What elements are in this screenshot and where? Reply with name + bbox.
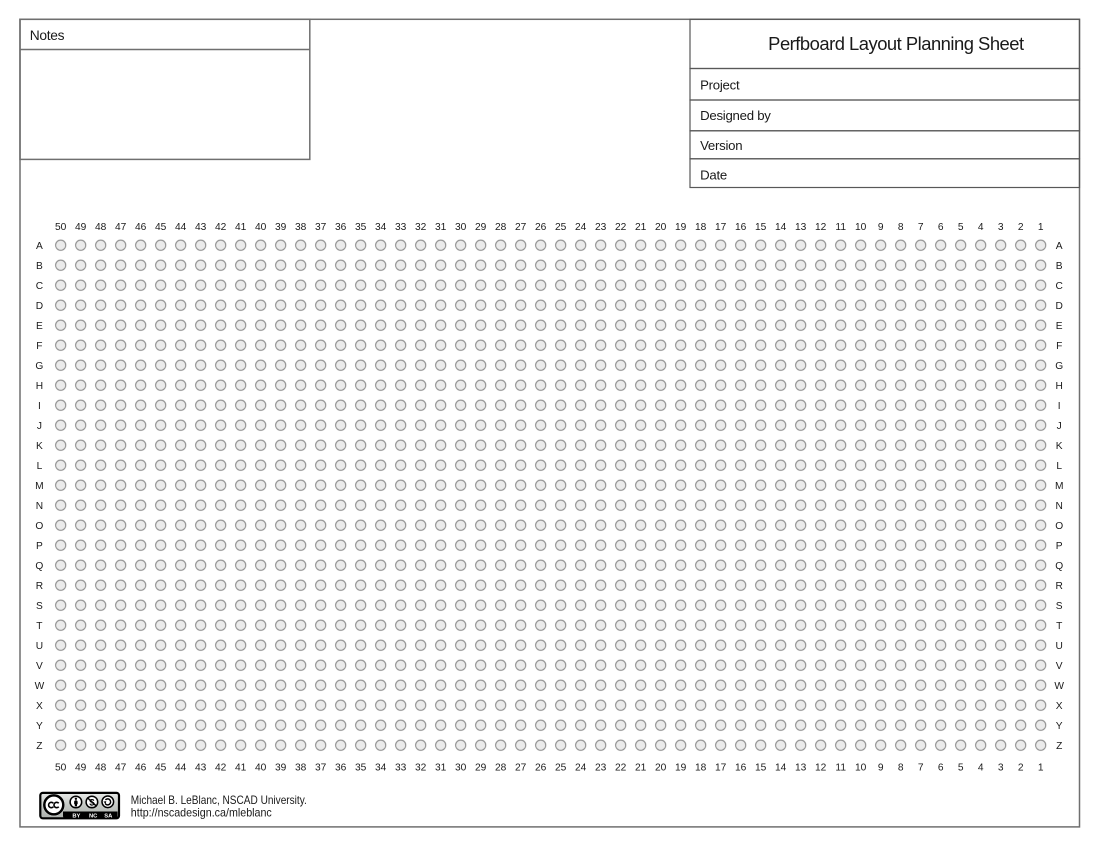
svg-text:33: 33 bbox=[395, 222, 407, 233]
svg-text:38: 38 bbox=[295, 222, 307, 233]
svg-text:35: 35 bbox=[355, 222, 367, 233]
svg-text:38: 38 bbox=[295, 763, 307, 774]
svg-text:12: 12 bbox=[815, 222, 827, 233]
svg-text:37: 37 bbox=[315, 222, 327, 233]
svg-text:R: R bbox=[36, 581, 43, 592]
svg-text:19: 19 bbox=[675, 763, 687, 774]
svg-text:18: 18 bbox=[695, 222, 707, 233]
svg-text:4: 4 bbox=[978, 763, 984, 774]
svg-text:15: 15 bbox=[755, 222, 767, 233]
svg-text:D: D bbox=[36, 301, 43, 312]
svg-text:15: 15 bbox=[755, 763, 767, 774]
svg-text:29: 29 bbox=[475, 763, 487, 774]
svg-text:K: K bbox=[36, 441, 43, 452]
svg-text:46: 46 bbox=[135, 222, 147, 233]
svg-text:45: 45 bbox=[155, 222, 167, 233]
svg-text:49: 49 bbox=[75, 763, 87, 774]
svg-text:48: 48 bbox=[95, 763, 107, 774]
svg-text:14: 14 bbox=[775, 222, 787, 233]
svg-text:Project: Project bbox=[700, 78, 740, 93]
svg-text:H: H bbox=[36, 381, 43, 392]
svg-text:C: C bbox=[1056, 281, 1063, 292]
svg-text:49: 49 bbox=[75, 222, 87, 233]
svg-text:40: 40 bbox=[255, 763, 267, 774]
svg-text:8: 8 bbox=[898, 763, 904, 774]
svg-text:23: 23 bbox=[595, 763, 607, 774]
svg-text:O: O bbox=[1055, 521, 1063, 532]
svg-text:D: D bbox=[1056, 301, 1063, 312]
svg-text:V: V bbox=[36, 661, 43, 672]
svg-text:39: 39 bbox=[275, 222, 287, 233]
svg-text:B: B bbox=[1056, 261, 1063, 272]
svg-text:Michael B. LeBlanc, NSCAD Univ: Michael B. LeBlanc, NSCAD University. bbox=[131, 794, 307, 807]
svg-text:6: 6 bbox=[938, 763, 944, 774]
svg-text:Date: Date bbox=[700, 168, 727, 183]
svg-text:44: 44 bbox=[175, 222, 187, 233]
svg-text:31: 31 bbox=[435, 763, 447, 774]
svg-text:42: 42 bbox=[215, 763, 227, 774]
svg-text:30: 30 bbox=[455, 222, 467, 233]
svg-text:5: 5 bbox=[958, 222, 964, 233]
svg-text:J: J bbox=[37, 421, 42, 432]
svg-text:N: N bbox=[1056, 501, 1063, 512]
svg-text:36: 36 bbox=[335, 222, 347, 233]
svg-text:32: 32 bbox=[415, 222, 427, 233]
svg-text:27: 27 bbox=[515, 222, 527, 233]
svg-text:35: 35 bbox=[355, 763, 367, 774]
svg-text:42: 42 bbox=[215, 222, 227, 233]
svg-text:Q: Q bbox=[35, 561, 43, 572]
svg-text:U: U bbox=[1056, 641, 1063, 652]
svg-text:Notes: Notes bbox=[30, 28, 65, 43]
svg-text:46: 46 bbox=[135, 763, 147, 774]
svg-text:21: 21 bbox=[635, 222, 647, 233]
svg-text:T: T bbox=[1056, 621, 1062, 632]
svg-text:37: 37 bbox=[315, 763, 327, 774]
svg-text:41: 41 bbox=[235, 763, 247, 774]
svg-text:16: 16 bbox=[735, 222, 747, 233]
svg-text:J: J bbox=[1057, 421, 1062, 432]
svg-text:20: 20 bbox=[655, 222, 667, 233]
svg-text:Q: Q bbox=[1055, 561, 1063, 572]
svg-text:R: R bbox=[1056, 581, 1063, 592]
svg-text:P: P bbox=[36, 541, 43, 552]
svg-text:I: I bbox=[38, 401, 41, 412]
svg-text:W: W bbox=[1054, 681, 1064, 692]
svg-text:27: 27 bbox=[515, 763, 527, 774]
svg-text:22: 22 bbox=[615, 222, 627, 233]
svg-text:30: 30 bbox=[455, 763, 467, 774]
svg-text:28: 28 bbox=[495, 222, 507, 233]
svg-text:47: 47 bbox=[115, 222, 127, 233]
svg-text:G: G bbox=[35, 361, 43, 372]
svg-text:33: 33 bbox=[395, 763, 407, 774]
svg-text:34: 34 bbox=[375, 222, 387, 233]
svg-text:L: L bbox=[37, 461, 43, 472]
svg-text:I: I bbox=[1058, 401, 1061, 412]
svg-text:K: K bbox=[1056, 441, 1063, 452]
svg-text:25: 25 bbox=[555, 763, 567, 774]
svg-text:50: 50 bbox=[55, 222, 67, 233]
svg-text:H: H bbox=[1056, 381, 1063, 392]
svg-text:Perfboard Layout Planning Shee: Perfboard Layout Planning Sheet bbox=[768, 33, 1024, 54]
svg-text:NC: NC bbox=[89, 814, 98, 820]
svg-text:17: 17 bbox=[715, 763, 727, 774]
svg-text:2: 2 bbox=[1018, 222, 1024, 233]
svg-text:1: 1 bbox=[1038, 222, 1044, 233]
svg-text:5: 5 bbox=[958, 763, 964, 774]
svg-text:SA: SA bbox=[104, 814, 113, 820]
svg-text:X: X bbox=[36, 701, 43, 712]
svg-text:24: 24 bbox=[575, 222, 587, 233]
svg-text:45: 45 bbox=[155, 763, 167, 774]
svg-text:36: 36 bbox=[335, 763, 347, 774]
svg-text:G: G bbox=[1055, 361, 1063, 372]
svg-text:24: 24 bbox=[575, 763, 587, 774]
svg-text:14: 14 bbox=[775, 763, 787, 774]
svg-text:50: 50 bbox=[55, 763, 67, 774]
svg-text:40: 40 bbox=[255, 222, 267, 233]
svg-text:13: 13 bbox=[795, 222, 807, 233]
svg-text:25: 25 bbox=[555, 222, 567, 233]
svg-text:8: 8 bbox=[898, 222, 904, 233]
svg-text:9: 9 bbox=[878, 763, 884, 774]
svg-text:10: 10 bbox=[855, 763, 867, 774]
svg-text:29: 29 bbox=[475, 222, 487, 233]
svg-text:Z: Z bbox=[1056, 741, 1062, 752]
svg-text:21: 21 bbox=[635, 763, 647, 774]
svg-text:48: 48 bbox=[95, 222, 107, 233]
svg-text:Designed by: Designed by bbox=[700, 108, 771, 123]
svg-text:A: A bbox=[1056, 241, 1063, 252]
svg-text:17: 17 bbox=[715, 222, 727, 233]
svg-text:9: 9 bbox=[878, 222, 884, 233]
svg-text:12: 12 bbox=[815, 763, 827, 774]
svg-text:6: 6 bbox=[938, 222, 944, 233]
svg-text:M: M bbox=[35, 481, 44, 492]
svg-text:http://nscadesign.ca/mleblanc: http://nscadesign.ca/mleblanc bbox=[131, 807, 272, 820]
svg-text:10: 10 bbox=[855, 222, 867, 233]
svg-text:20: 20 bbox=[655, 763, 667, 774]
svg-text:S: S bbox=[1056, 601, 1063, 612]
svg-text:44: 44 bbox=[175, 763, 187, 774]
svg-text:7: 7 bbox=[918, 763, 924, 774]
svg-text:BY: BY bbox=[72, 814, 80, 820]
svg-text:11: 11 bbox=[835, 763, 846, 774]
svg-text:W: W bbox=[35, 681, 45, 692]
svg-text:16: 16 bbox=[735, 763, 747, 774]
svg-text:S: S bbox=[36, 601, 43, 612]
svg-text:B: B bbox=[36, 261, 43, 272]
svg-text:O: O bbox=[35, 521, 43, 532]
svg-text:7: 7 bbox=[918, 222, 924, 233]
svg-text:V: V bbox=[1056, 661, 1063, 672]
svg-text:43: 43 bbox=[195, 763, 207, 774]
svg-text:22: 22 bbox=[615, 763, 627, 774]
svg-text:F: F bbox=[1056, 341, 1062, 352]
svg-text:4: 4 bbox=[978, 222, 984, 233]
svg-text:N: N bbox=[36, 501, 43, 512]
svg-text:11: 11 bbox=[835, 222, 846, 233]
svg-text:13: 13 bbox=[795, 763, 807, 774]
svg-text:28: 28 bbox=[495, 763, 507, 774]
svg-text:L: L bbox=[1056, 461, 1062, 472]
svg-text:26: 26 bbox=[535, 763, 547, 774]
svg-text:34: 34 bbox=[375, 763, 387, 774]
svg-text:19: 19 bbox=[675, 222, 687, 233]
svg-text:31: 31 bbox=[435, 222, 447, 233]
svg-text:Version: Version bbox=[700, 138, 742, 153]
svg-text:39: 39 bbox=[275, 763, 287, 774]
svg-text:F: F bbox=[36, 341, 42, 352]
svg-text:P: P bbox=[1056, 541, 1063, 552]
svg-text:3: 3 bbox=[998, 222, 1004, 233]
svg-text:C: C bbox=[36, 281, 43, 292]
svg-text:18: 18 bbox=[695, 763, 707, 774]
svg-text:T: T bbox=[36, 621, 42, 632]
svg-text:U: U bbox=[36, 641, 43, 652]
svg-text:32: 32 bbox=[415, 763, 427, 774]
svg-text:41: 41 bbox=[235, 222, 247, 233]
svg-text:1: 1 bbox=[1038, 763, 1044, 774]
svg-text:43: 43 bbox=[195, 222, 207, 233]
svg-text:26: 26 bbox=[535, 222, 547, 233]
svg-text:X: X bbox=[1056, 701, 1063, 712]
svg-text:47: 47 bbox=[115, 763, 127, 774]
svg-text:3: 3 bbox=[998, 763, 1004, 774]
svg-text:M: M bbox=[1055, 481, 1064, 492]
svg-text:A: A bbox=[36, 241, 43, 252]
svg-text:Y: Y bbox=[1056, 721, 1063, 732]
svg-text:E: E bbox=[1056, 321, 1063, 332]
svg-text:E: E bbox=[36, 321, 43, 332]
svg-text:2: 2 bbox=[1018, 763, 1024, 774]
svg-text:Z: Z bbox=[36, 741, 42, 752]
svg-text:Y: Y bbox=[36, 721, 43, 732]
svg-text:23: 23 bbox=[595, 222, 607, 233]
